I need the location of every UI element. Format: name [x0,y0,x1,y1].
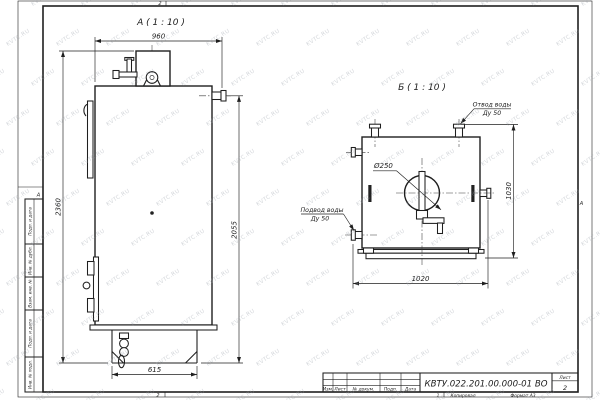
zone-marker-left: А [36,193,41,199]
dim-960-label: 960 [152,33,166,41]
sheet-footer: 1 Копировал Формат А3 [437,393,536,399]
sheet-number: 2 [563,384,567,392]
right-hinge-bar [471,185,474,202]
tb-header-data: Дата [404,386,417,392]
zone-marker-top: 2 [158,1,161,7]
base-pedestal [90,325,217,363]
inlet-label-line2: Ду 50 [310,216,329,223]
dim-615-label: 615 [148,366,162,374]
door-hinges [83,257,98,321]
side-columns: Подп. и дата Инв. № дубл. Взам. инв. № П… [25,199,43,392]
view-b-title: Б ( 1 : 10 ) [398,83,446,93]
shaker-lever [84,101,93,178]
sensor-fitting [113,58,137,79]
sheet-label: Лист [558,375,571,381]
tb-header-izm: Изм. [323,386,333,392]
zone-marker-bottom: 2 [156,393,159,399]
inlet-callout: Подвод воды Ду 50 [301,207,355,231]
technical-drawing: 2 2 А А Подп. и дата Инв. № дубл. Взам. … [0,0,600,400]
side-column-label: Подп. и дата [27,319,32,348]
left-hinge-bar [368,185,371,202]
view-b-side: Б ( 1 : 10 ) [301,83,519,289]
dim-2055-label: 2055 [231,221,239,239]
center-mark [150,211,154,215]
outlet-label-line2: Ду 50 [482,110,501,117]
outlet-label-line1: Отвод воды [473,102,512,109]
document-number: КВТУ.022.201.00.000-01 ВО [425,379,548,389]
dim-2360-label: 2360 [55,198,63,216]
inlet-label-line1: Подвод воды [301,207,344,214]
right-stub [480,188,491,198]
dim-diameter-label: Ø250 [373,162,393,170]
side-column-label: Инв. № дубл. [27,246,32,275]
dim-1030-label: 1030 [505,182,513,200]
format-label: Формат А3 [510,393,535,399]
tb-header-podp: Подп. [384,386,397,392]
outlet-callout: Отвод воды Ду 50 [461,102,512,124]
side-base [358,248,484,259]
side-column-label: Инв. № подл. [27,360,32,389]
tb-header-docnum: № докум. [352,386,375,392]
copy-number: 1 [437,393,440,399]
dim-1020-label: 1020 [412,275,430,283]
side-column-label: Подп. и дата [27,207,32,236]
side-column-label: Взам. инв. № [27,279,32,308]
view-a-front: А ( 1 : 10 ) [55,18,244,379]
title-block: Изм. Лист № докум. Подп. Дата КВТУ.022.2… [323,373,578,392]
boiler-body [95,86,212,325]
copied-label: Копировал [450,393,475,399]
view-a-title: А ( 1 : 10 ) [136,18,185,28]
dim-615: 615 [112,366,197,379]
zone-marker-right: А [579,201,584,207]
tb-header-list: Лист [333,386,346,392]
drawing-sheet: 2 2 А А Подп. и дата Инв. № дубл. Взам. … [0,0,600,400]
